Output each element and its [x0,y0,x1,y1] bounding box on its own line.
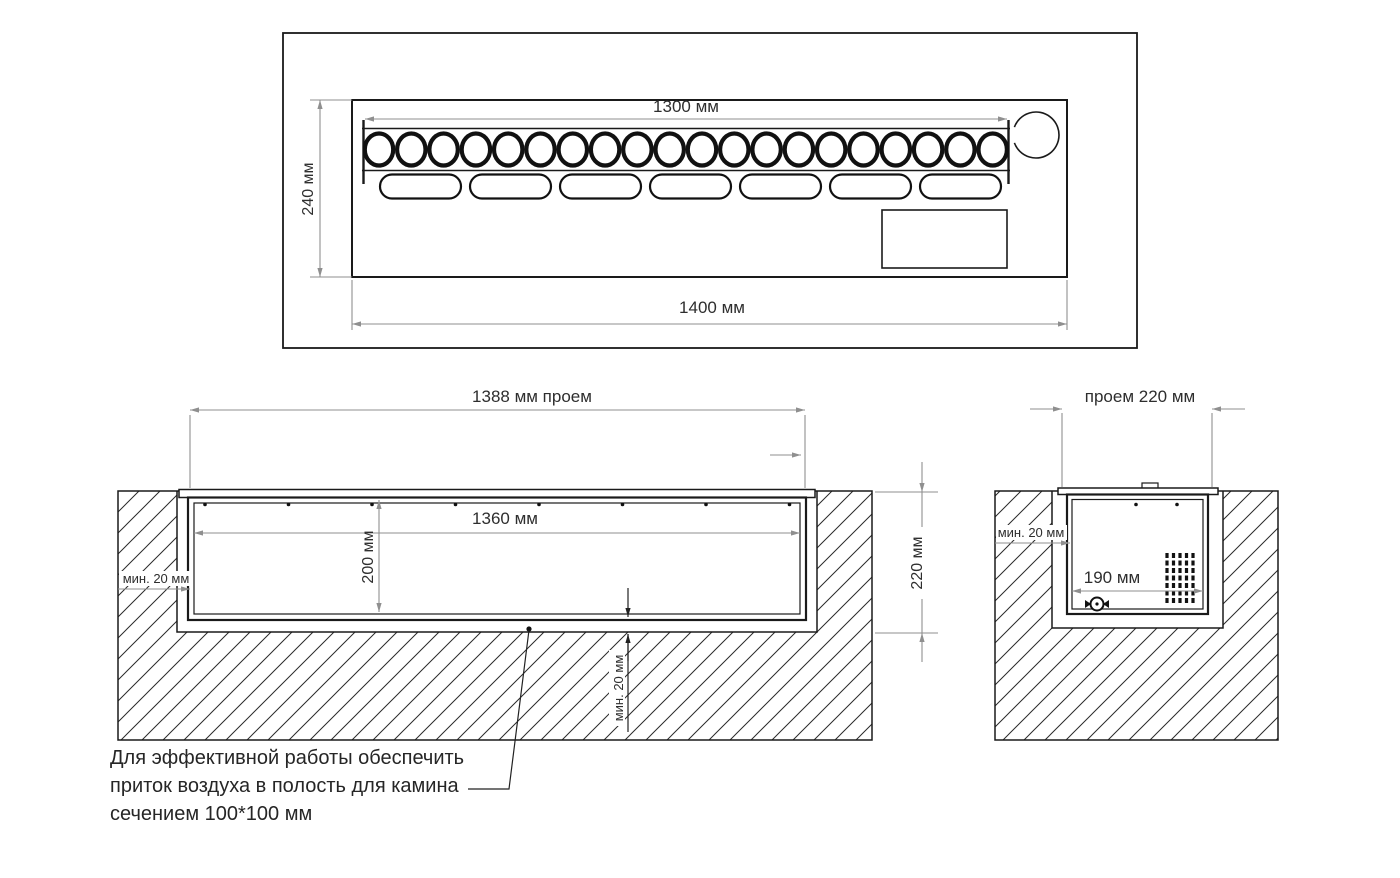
dim-label-burner-row: 1300 мм [653,97,719,116]
burner-hole [914,134,942,166]
fastener-dot [704,503,708,507]
burner-hole [720,134,748,166]
dim-label-bottom-gap: мин. 20 мм [611,655,626,722]
fastener-dot [287,503,291,507]
burner-hole [656,134,684,166]
burner-hole [365,134,393,166]
dim-label-total-width: 1400 мм [679,298,745,317]
air-slot [650,175,731,199]
burner-hole [429,134,457,166]
fastener-dot [1175,503,1179,507]
burner-hole [752,134,780,166]
air-slot-row [380,175,1001,199]
dim-label-opening-side: проем 220 мм [1085,387,1195,406]
burner-hole [462,134,490,166]
burner-hole [526,134,554,166]
fastener-dot [203,503,207,507]
ignition-circle [1014,112,1059,158]
burner-hole [591,134,619,166]
burner-hole [817,134,845,166]
top-view: 1300 мм 240 мм 1400 мм [283,33,1137,348]
fastener-dot [1134,503,1138,507]
air-slot [830,175,911,199]
burner-holes-row [365,134,1007,166]
air-slot [920,175,1001,199]
front-section-view: 1388 мм проем 1360 мм 200 мм мин. 20 мм … [118,387,938,789]
dim-label-insert-width: 1360 мм [472,509,538,528]
control-box [882,210,1007,268]
burner-hole [494,134,522,166]
burner-hole [559,134,587,166]
note: Для эффективной работы обеспечить приток… [110,747,464,825]
burner-hole [623,134,651,166]
burner-hole [785,134,813,166]
burner-hole [688,134,716,166]
side-section-view: проем 220 мм мин. 20 мм 190 мм [995,387,1278,740]
drawing-canvas: 1300 мм 240 мм 1400 мм 1388 мм проем 136… [0,0,1400,878]
air-slot [380,175,461,199]
note-line-3: сечением 100*100 мм [110,803,312,825]
fastener-dot [621,503,625,507]
note-line-1: Для эффективной работы обеспечить [110,747,464,769]
burner-hole [849,134,877,166]
fireplace-top-outline [352,100,1067,277]
fastener-dot [370,503,374,507]
dim-label-recess-depth: 220 мм [909,536,926,589]
air-slot [470,175,551,199]
burner-hole [979,134,1007,166]
dim-label-inner-width-side: 190 мм [1084,568,1140,587]
insert-top-flange [179,490,815,498]
burner-hole [946,134,974,166]
burner-hole [882,134,910,166]
dim-label-opening-front: 1388 мм проем [472,387,592,406]
technical-drawing: 1300 мм 240 мм 1400 мм 1388 мм проем 136… [0,0,1400,878]
dim-label-side-gap-front: мин. 20 мм [123,571,190,586]
dim-label-depth: 240 мм [300,162,317,215]
dim-label-insert-depth: 200 мм [360,530,377,583]
fastener-dot [788,503,792,507]
burner-hole [397,134,425,166]
note-line-2: приток воздуха в полость для камина [110,775,460,797]
insert-inner-wall-side [1072,500,1203,610]
dim-label-side-gap-side: мин. 20 мм [998,525,1065,540]
air-slot [560,175,641,199]
fastener-dot [537,503,541,507]
fastener-dot [454,503,458,507]
air-slot [740,175,821,199]
